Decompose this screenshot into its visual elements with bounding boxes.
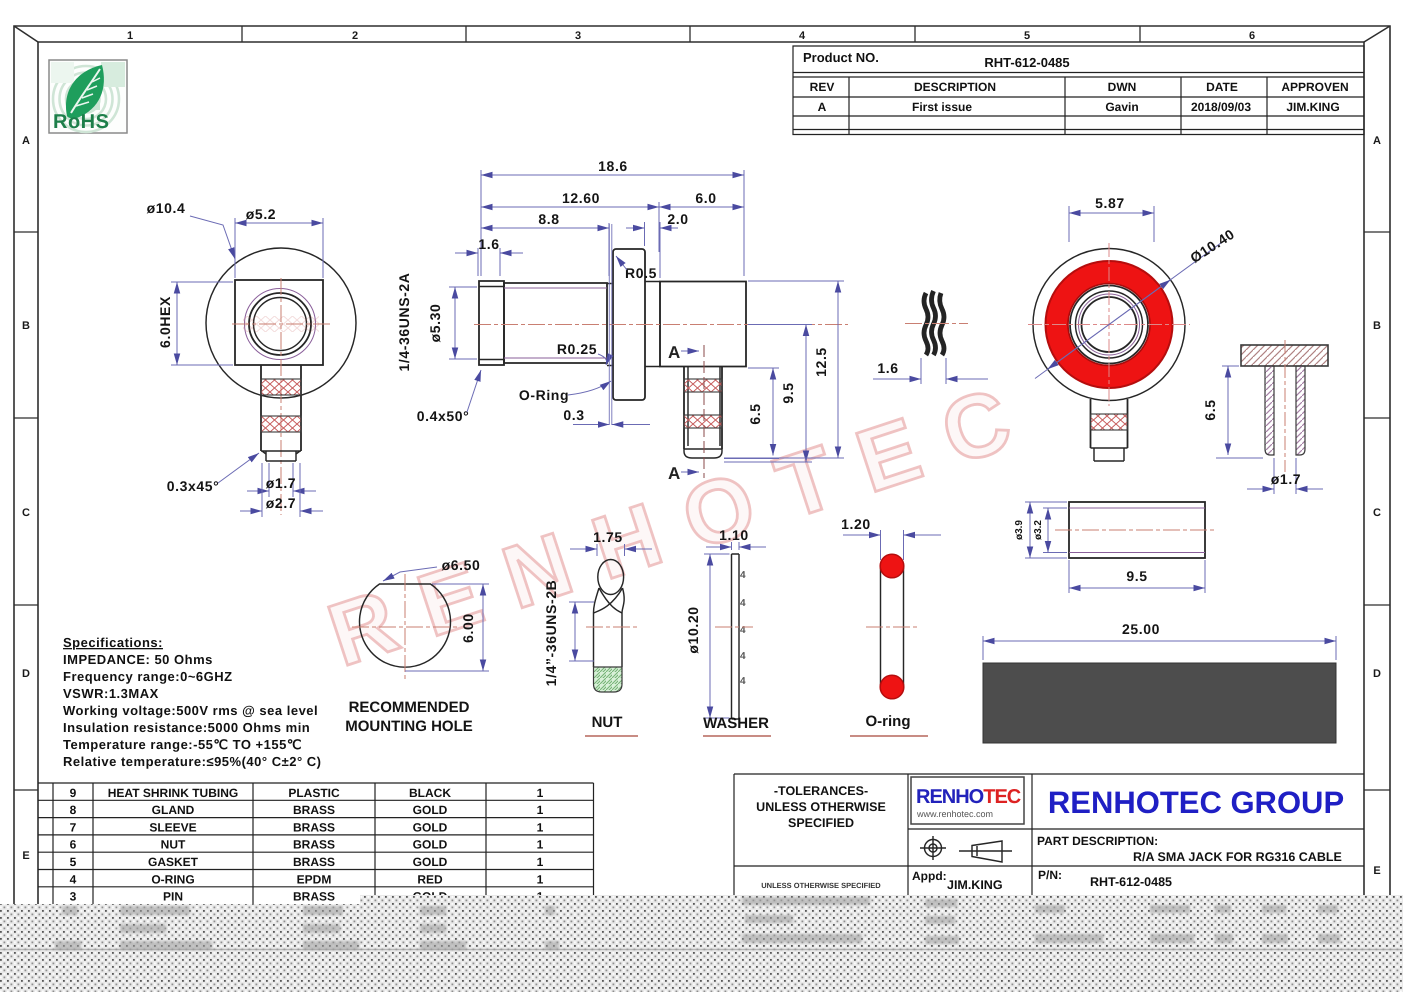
svg-text:1/4-36UNS-2A: 1/4-36UNS-2A — [396, 272, 412, 371]
svg-text:12.60: 12.60 — [562, 190, 600, 206]
svg-text:ø5.2: ø5.2 — [246, 206, 276, 222]
svg-text:ø10.4: ø10.4 — [147, 200, 186, 216]
svg-text:ø5.30: ø5.30 — [427, 304, 443, 343]
svg-text:E: E — [22, 850, 29, 862]
svg-text:0.4x50°: 0.4x50° — [417, 408, 470, 424]
svg-text:Insulation resistance:5000 Ohm: Insulation resistance:5000 Ohms min — [63, 720, 310, 735]
svg-text:Product NO.: Product NO. — [803, 50, 879, 65]
svg-text:1.20: 1.20 — [841, 516, 871, 532]
svg-text:JIM.KING: JIM.KING — [1286, 100, 1339, 114]
svg-text:6.5: 6.5 — [1202, 399, 1218, 420]
svg-text:1: 1 — [537, 803, 544, 817]
svg-text:1: 1 — [537, 838, 544, 852]
svg-text:5: 5 — [70, 855, 77, 869]
svg-text:Working voltage:500V rms @ sea: Working voltage:500V rms @ sea level — [63, 703, 318, 718]
svg-text:GOLD: GOLD — [413, 821, 448, 835]
svg-text:E: E — [1373, 865, 1380, 877]
svg-text:A: A — [818, 100, 827, 114]
svg-text:RHT-612-0485: RHT-612-0485 — [984, 55, 1069, 70]
svg-text:1: 1 — [537, 873, 544, 887]
svg-text:RoHS: RoHS — [53, 111, 109, 133]
svg-text:25.00: 25.00 — [1122, 621, 1160, 637]
svg-text:RECOMMENDED: RECOMMENDED — [349, 699, 470, 716]
svg-text:4: 4 — [799, 30, 806, 42]
svg-text:Gavin: Gavin — [1105, 100, 1138, 114]
svg-text:Relative temperature:≤95%(40°: Relative temperature:≤95%(40° C±2° C) — [63, 754, 321, 769]
svg-text:1.6: 1.6 — [877, 360, 898, 376]
svg-text:6: 6 — [70, 838, 77, 852]
svg-text:ø10.20: ø10.20 — [685, 606, 701, 653]
svg-text:GOLD: GOLD — [413, 855, 448, 869]
svg-text:C: C — [22, 507, 30, 519]
svg-text:O-Ring: O-Ring — [519, 387, 569, 403]
svg-text:HEAT SHRINK TUBING: HEAT SHRINK TUBING — [108, 786, 238, 800]
svg-text:6.5: 6.5 — [747, 403, 763, 424]
svg-text:First issue: First issue — [912, 100, 972, 114]
svg-text:1/4”-36UNS-2B: 1/4”-36UNS-2B — [543, 580, 559, 687]
svg-text:RENHOTEC: RENHOTEC — [916, 786, 1021, 808]
svg-text:WASHER: WASHER — [703, 715, 769, 732]
svg-text:BRASS: BRASS — [293, 838, 335, 852]
svg-text:1.75: 1.75 — [593, 529, 623, 545]
svg-text:ø3.2: ø3.2 — [1033, 520, 1044, 540]
svg-text:DESCRIPTION: DESCRIPTION — [914, 80, 996, 94]
svg-text:BRASS: BRASS — [293, 855, 335, 869]
svg-text:2018/09/03: 2018/09/03 — [1191, 100, 1251, 114]
svg-text:BRASS: BRASS — [293, 821, 335, 835]
svg-text:1: 1 — [127, 30, 133, 42]
svg-text:A: A — [668, 464, 680, 483]
svg-text:B: B — [1373, 320, 1381, 332]
svg-text:4: 4 — [70, 873, 77, 887]
svg-text:3: 3 — [575, 30, 581, 42]
svg-text:0.3: 0.3 — [563, 407, 584, 423]
svg-text:R0.5: R0.5 — [625, 265, 657, 281]
svg-text:A: A — [22, 135, 30, 147]
svg-text:9: 9 — [70, 786, 77, 800]
svg-text:UNLESS OTHERWISE: UNLESS OTHERWISE — [756, 800, 886, 814]
svg-text:4: 4 — [740, 570, 746, 581]
svg-text:UNLESS OTHERWISE SPECIFIED: UNLESS OTHERWISE SPECIFIED — [761, 881, 881, 890]
svg-text:A: A — [668, 343, 680, 362]
svg-text:Temperature range:-55℃ TO +155: Temperature range:-55℃ TO +155℃ — [63, 737, 302, 752]
svg-text:RENHOTEC GROUP: RENHOTEC GROUP — [1048, 785, 1344, 820]
svg-text:VSWR:1.3MAX: VSWR:1.3MAX — [63, 686, 159, 701]
svg-text:3: 3 — [70, 890, 77, 904]
svg-text:BRASS: BRASS — [293, 803, 335, 817]
svg-text:GOLD: GOLD — [413, 838, 448, 852]
svg-text:ø3.9: ø3.9 — [1014, 520, 1025, 540]
svg-text:D: D — [22, 668, 30, 680]
svg-text:9.5: 9.5 — [1126, 568, 1147, 584]
svg-text:6.0HEX: 6.0HEX — [157, 296, 173, 348]
svg-text:O-ring: O-ring — [866, 713, 911, 730]
svg-text:ø6.50: ø6.50 — [442, 557, 481, 573]
svg-text:1.10: 1.10 — [719, 527, 749, 543]
svg-text:18.6: 18.6 — [598, 158, 628, 174]
svg-text:NUT: NUT — [592, 714, 623, 731]
svg-text:PIN: PIN — [163, 890, 183, 904]
svg-text:SPECIFIED: SPECIFIED — [788, 816, 854, 830]
svg-text:8: 8 — [70, 803, 77, 817]
svg-text:6.0: 6.0 — [695, 190, 716, 206]
svg-text:A: A — [1373, 135, 1381, 147]
svg-text:1: 1 — [537, 786, 544, 800]
svg-text:GLAND: GLAND — [152, 803, 195, 817]
svg-text:9.5: 9.5 — [780, 382, 796, 403]
svg-text:8.8: 8.8 — [538, 211, 559, 227]
svg-text:SLEEVE: SLEEVE — [149, 821, 196, 835]
svg-text:BLACK: BLACK — [409, 786, 451, 800]
svg-text:6: 6 — [1249, 30, 1255, 42]
svg-text:12.5: 12.5 — [813, 347, 829, 377]
svg-text:-TOLERANCES-: -TOLERANCES- — [774, 784, 868, 798]
svg-text:RHT-612-0485: RHT-612-0485 — [1090, 875, 1172, 889]
svg-text:1: 1 — [537, 855, 544, 869]
svg-text:R/A SMA JACK FOR RG316 CABLE: R/A SMA JACK FOR RG316 CABLE — [1133, 850, 1342, 864]
svg-text:Frequency range:0~6GHZ: Frequency range:0~6GHZ — [63, 669, 233, 684]
svg-text:D: D — [1373, 668, 1381, 680]
svg-text:GOLD: GOLD — [413, 803, 448, 817]
svg-text:6.00: 6.00 — [460, 613, 476, 643]
svg-text:5.87: 5.87 — [1095, 195, 1125, 211]
svg-text:O-RING: O-RING — [151, 873, 194, 887]
svg-text:R0.25: R0.25 — [557, 341, 597, 357]
svg-text:ø1.7: ø1.7 — [266, 475, 296, 491]
svg-text:GASKET: GASKET — [148, 855, 199, 869]
svg-text:EPDM: EPDM — [297, 873, 332, 887]
svg-text:Appd:: Appd: — [912, 869, 947, 883]
svg-text:0.3x45°: 0.3x45° — [167, 478, 220, 494]
svg-text:ø1.7: ø1.7 — [1271, 471, 1301, 487]
svg-text:Specifications:: Specifications: — [63, 635, 163, 650]
svg-text:www.renhotec.com: www.renhotec.com — [916, 809, 993, 819]
svg-text:ø2.7: ø2.7 — [266, 495, 296, 511]
svg-text:DWN: DWN — [1108, 80, 1137, 94]
svg-text:P/N:: P/N: — [1038, 868, 1062, 882]
svg-text:B: B — [22, 320, 30, 332]
svg-text:RED: RED — [417, 873, 443, 887]
svg-text:4: 4 — [740, 651, 746, 662]
svg-text:2.0: 2.0 — [667, 211, 688, 227]
svg-text:REV: REV — [810, 80, 835, 94]
svg-text:4: 4 — [740, 676, 746, 687]
svg-text:C: C — [1373, 507, 1381, 519]
svg-text:IMPEDANCE: 50 Ohms: IMPEDANCE: 50 Ohms — [63, 652, 213, 667]
svg-text:1.6: 1.6 — [478, 236, 499, 252]
svg-text:5: 5 — [1024, 30, 1030, 42]
svg-text:APPROVEN: APPROVEN — [1281, 80, 1348, 94]
svg-text:4: 4 — [740, 598, 746, 609]
svg-text:NUT: NUT — [161, 838, 186, 852]
svg-text:MOUNTING HOLE: MOUNTING HOLE — [345, 718, 473, 735]
svg-text:2: 2 — [352, 30, 358, 42]
svg-text:PLASTIC: PLASTIC — [288, 786, 340, 800]
svg-text:BRASS: BRASS — [293, 890, 335, 904]
svg-text:1: 1 — [537, 821, 544, 835]
svg-text:7: 7 — [70, 821, 77, 835]
svg-text:PART DESCRIPTION:: PART DESCRIPTION: — [1037, 834, 1158, 848]
svg-text:DATE: DATE — [1206, 80, 1238, 94]
svg-text:JIM.KING: JIM.KING — [947, 878, 1003, 892]
